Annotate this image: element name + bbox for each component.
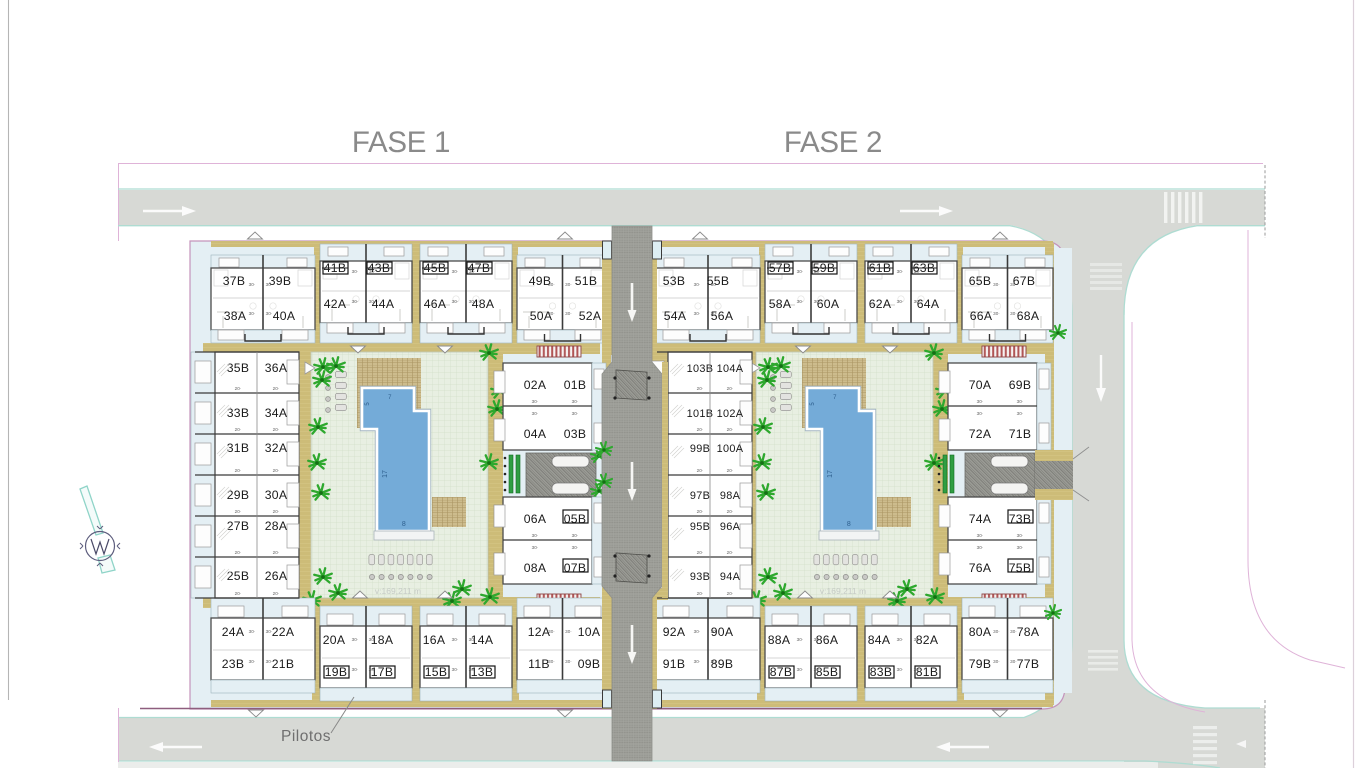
svg-text:30·: 30· [711, 659, 718, 664]
svg-text:31B: 31B [227, 441, 250, 455]
svg-text:30·: 30· [369, 637, 376, 642]
svg-text:46A: 46A [424, 297, 447, 311]
svg-text:40A: 40A [273, 309, 296, 323]
svg-text:30·: 30· [548, 311, 555, 316]
svg-text:20·: 20· [235, 550, 242, 555]
svg-text:75B: 75B [1009, 561, 1032, 575]
svg-text:37B: 37B [223, 274, 246, 288]
svg-text:30·: 30· [814, 269, 821, 274]
svg-text:30·: 30· [352, 637, 359, 642]
svg-text:78A: 78A [1017, 625, 1040, 639]
svg-text:30·: 30· [249, 629, 256, 634]
svg-text:94A: 94A [720, 571, 741, 583]
svg-text:30·: 30· [532, 533, 539, 538]
svg-text:30·: 30· [897, 637, 904, 642]
svg-text:30·: 30· [711, 311, 718, 316]
svg-text:20·: 20· [235, 386, 242, 391]
svg-text:30·: 30· [1017, 411, 1024, 416]
svg-text:30·: 30· [565, 311, 572, 316]
svg-text:30·: 30· [914, 667, 921, 672]
svg-text:19B: 19B [325, 665, 348, 679]
svg-text:35B: 35B [227, 361, 250, 375]
svg-text:20·: 20· [727, 591, 734, 596]
svg-text:v:169,211 m: v:169,211 m [375, 586, 421, 596]
svg-text:20·: 20· [273, 550, 280, 555]
svg-text:30·: 30· [452, 269, 459, 274]
svg-text:30·: 30· [572, 399, 579, 404]
svg-text:30·: 30· [469, 269, 476, 274]
svg-text:30·: 30· [452, 667, 459, 672]
svg-text:30·: 30· [565, 659, 572, 664]
svg-text:95B: 95B [690, 521, 710, 533]
svg-text:30·: 30· [572, 545, 579, 550]
svg-text:71B: 71B [1009, 427, 1032, 441]
svg-text:30·: 30· [977, 411, 984, 416]
svg-text:20·: 20· [697, 550, 704, 555]
svg-text:52A: 52A [579, 309, 602, 323]
svg-text:8: 8 [847, 521, 851, 528]
svg-text:04A: 04A [524, 427, 547, 441]
svg-text:96A: 96A [720, 521, 741, 533]
svg-text:97B: 97B [690, 490, 710, 502]
svg-text:30·: 30· [266, 282, 273, 287]
svg-text:15B: 15B [425, 665, 448, 679]
svg-text:01B: 01B [564, 378, 587, 392]
svg-text:103B: 103B [687, 363, 714, 375]
svg-text:30·: 30· [1010, 629, 1017, 634]
svg-text:30·: 30· [977, 545, 984, 550]
svg-text:FASE 2: FASE 2 [784, 126, 882, 159]
svg-text:30·: 30· [469, 667, 476, 672]
svg-text:30·: 30· [266, 629, 273, 634]
svg-text:32A: 32A [265, 441, 288, 455]
svg-text:69B: 69B [1009, 378, 1032, 392]
svg-text:51B: 51B [575, 274, 598, 288]
svg-text:20·: 20· [697, 468, 704, 473]
svg-text:26A: 26A [265, 569, 288, 583]
svg-text:84A: 84A [868, 633, 891, 647]
svg-text:24A: 24A [222, 625, 245, 639]
svg-text:66A: 66A [970, 309, 993, 323]
svg-text:30·: 30· [452, 637, 459, 642]
svg-text:20·: 20· [273, 386, 280, 391]
svg-text:77B: 77B [1017, 657, 1040, 671]
svg-text:79B: 79B [969, 657, 992, 671]
svg-text:30·: 30· [814, 637, 821, 642]
svg-text:30·: 30· [993, 311, 1000, 316]
svg-text:20·: 20· [697, 591, 704, 596]
svg-text:30·: 30· [993, 282, 1000, 287]
svg-text:22A: 22A [272, 625, 295, 639]
svg-text:30·: 30· [1010, 311, 1017, 316]
svg-text:30·: 30· [548, 659, 555, 664]
svg-text:30·: 30· [565, 629, 572, 634]
svg-text:30·: 30· [532, 411, 539, 416]
svg-text:20·: 20· [727, 386, 734, 391]
svg-text:99B: 99B [690, 443, 710, 455]
svg-text:30·: 30· [369, 269, 376, 274]
svg-text:23B: 23B [222, 657, 245, 671]
svg-text:8: 8 [402, 521, 406, 528]
svg-text:30·: 30· [249, 311, 256, 316]
svg-text:03B: 03B [564, 427, 587, 441]
svg-text:21B: 21B [272, 657, 295, 671]
svg-text:FASE 1: FASE 1 [352, 126, 450, 159]
svg-text:30·: 30· [797, 667, 804, 672]
svg-text:93B: 93B [690, 571, 710, 583]
svg-text:30·: 30· [914, 299, 921, 304]
svg-text:7: 7 [388, 395, 392, 401]
svg-text:30·: 30· [469, 299, 476, 304]
svg-text:30·: 30· [814, 667, 821, 672]
svg-text:36A: 36A [265, 361, 288, 375]
svg-text:30·: 30· [266, 311, 273, 316]
svg-text:30A: 30A [265, 488, 288, 502]
svg-text:30·: 30· [1017, 533, 1024, 538]
svg-text:20·: 20· [273, 591, 280, 596]
svg-text:30·: 30· [694, 629, 701, 634]
svg-text:20·: 20· [727, 509, 734, 514]
svg-text:20·: 20· [697, 427, 704, 432]
svg-text:30·: 30· [694, 311, 701, 316]
svg-text:20·: 20· [727, 427, 734, 432]
svg-text:30·: 30· [814, 299, 821, 304]
svg-text:20·: 20· [697, 386, 704, 391]
svg-text:30·: 30· [897, 269, 904, 274]
svg-text:20·: 20· [235, 468, 242, 473]
svg-text:30·: 30· [532, 399, 539, 404]
svg-text:30·: 30· [572, 411, 579, 416]
svg-text:74A: 74A [969, 512, 992, 526]
svg-text:30·: 30· [469, 637, 476, 642]
svg-text:06A: 06A [524, 512, 547, 526]
svg-text:08A: 08A [524, 561, 547, 575]
svg-text:30·: 30· [249, 282, 256, 287]
svg-text:30·: 30· [897, 299, 904, 304]
svg-text:42A: 42A [324, 297, 347, 311]
svg-text:10A: 10A [578, 625, 601, 639]
svg-text:72A: 72A [969, 427, 992, 441]
svg-text:91B: 91B [663, 657, 686, 671]
svg-text:30·: 30· [797, 269, 804, 274]
svg-text:30·: 30· [532, 545, 539, 550]
svg-text:30·: 30· [1017, 399, 1024, 404]
svg-text:20·: 20· [273, 427, 280, 432]
svg-text:88A: 88A [768, 633, 791, 647]
svg-text:25B: 25B [227, 569, 250, 583]
svg-text:07B: 07B [564, 561, 587, 575]
svg-text:30·: 30· [711, 282, 718, 287]
svg-text:30·: 30· [1010, 282, 1017, 287]
svg-text:20·: 20· [235, 509, 242, 514]
svg-text:100A: 100A [717, 443, 744, 455]
svg-text:20·: 20· [727, 468, 734, 473]
svg-text:30·: 30· [711, 629, 718, 634]
svg-text:30·: 30· [369, 299, 376, 304]
svg-text:76A: 76A [969, 561, 992, 575]
svg-text:30·: 30· [897, 667, 904, 672]
svg-text:30·: 30· [565, 282, 572, 287]
svg-text:62A: 62A [869, 297, 892, 311]
svg-text:92A: 92A [663, 625, 686, 639]
svg-text:30·: 30· [993, 659, 1000, 664]
svg-text:30·: 30· [694, 659, 701, 664]
svg-text:11B: 11B [528, 657, 550, 671]
svg-text:02A: 02A [524, 378, 547, 392]
svg-text:20·: 20· [727, 550, 734, 555]
svg-text:65B: 65B [969, 274, 992, 288]
svg-text:58A: 58A [769, 297, 792, 311]
svg-text:20·: 20· [235, 591, 242, 596]
svg-text:102A: 102A [717, 408, 744, 420]
svg-text:80A: 80A [969, 625, 992, 639]
svg-text:Pilotos: Pilotos [281, 728, 331, 745]
svg-text:73B: 73B [1009, 512, 1032, 526]
svg-text:30·: 30· [797, 637, 804, 642]
svg-text:30·: 30· [369, 667, 376, 672]
svg-text:101B: 101B [687, 408, 714, 420]
svg-text:30·: 30· [249, 659, 256, 664]
svg-text:30·: 30· [797, 299, 804, 304]
svg-text:98A: 98A [720, 490, 741, 502]
svg-text:30·: 30· [548, 282, 555, 287]
svg-text:17: 17 [382, 470, 389, 478]
svg-text:20·: 20· [273, 509, 280, 514]
svg-text:30·: 30· [548, 629, 555, 634]
svg-text:16A: 16A [423, 633, 446, 647]
svg-text:30·: 30· [1010, 659, 1017, 664]
svg-text:20·: 20· [697, 509, 704, 514]
svg-text:09B: 09B [578, 657, 601, 671]
svg-text:38A: 38A [224, 309, 247, 323]
svg-text:30·: 30· [1017, 545, 1024, 550]
svg-text:104A: 104A [717, 363, 744, 375]
svg-text:83B: 83B [870, 665, 893, 679]
svg-text:30·: 30· [452, 299, 459, 304]
svg-text:54A: 54A [664, 309, 687, 323]
svg-text:30·: 30· [914, 637, 921, 642]
svg-text:70A: 70A [969, 378, 992, 392]
svg-text:30·: 30· [977, 533, 984, 538]
svg-text:28A: 28A [265, 519, 288, 533]
svg-text:20·: 20· [273, 468, 280, 473]
svg-text:30·: 30· [352, 269, 359, 274]
svg-text:68A: 68A [1017, 309, 1040, 323]
svg-text:30·: 30· [977, 399, 984, 404]
svg-text:30·: 30· [572, 533, 579, 538]
svg-text:30·: 30· [694, 282, 701, 287]
svg-text:20·: 20· [235, 427, 242, 432]
svg-text:53B: 53B [663, 274, 686, 288]
svg-text:20A: 20A [323, 633, 346, 647]
svg-text:7: 7 [833, 395, 837, 401]
svg-text:30·: 30· [266, 659, 273, 664]
svg-text:30·: 30· [914, 269, 921, 274]
svg-text:v:169,211 m: v:169,211 m [820, 586, 866, 596]
svg-text:34A: 34A [265, 406, 288, 420]
svg-text:17: 17 [827, 470, 834, 478]
svg-text:05B: 05B [564, 512, 587, 526]
svg-text:30·: 30· [993, 629, 1000, 634]
svg-text:87B: 87B [770, 665, 793, 679]
svg-text:30·: 30· [352, 667, 359, 672]
svg-text:30·: 30· [352, 299, 359, 304]
